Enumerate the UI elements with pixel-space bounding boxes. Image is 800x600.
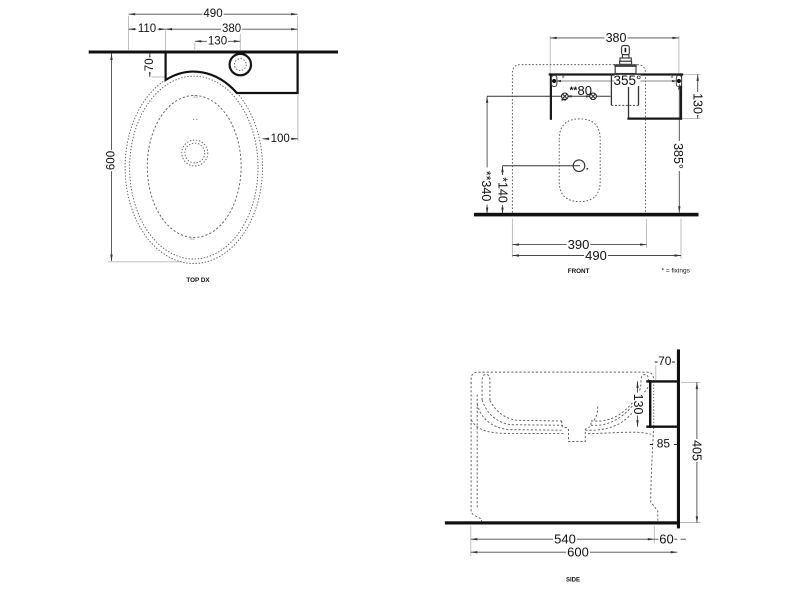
svg-text:- 85 -: - 85 - [649,436,677,450]
svg-text:130: 130 [690,93,704,114]
svg-text:405: 405 [689,440,703,461]
svg-text:380: 380 [222,23,241,35]
svg-text:*: * [671,76,674,83]
svg-text:**: ** [561,98,567,105]
svg-text:70: 70 [144,58,156,71]
svg-text:-70-: -70- [654,354,675,368]
svg-text:**340: **340 [479,171,493,202]
svg-text:SIDE: SIDE [566,578,580,584]
svg-text:*140: *140 [496,177,510,203]
svg-text:355°: 355° [614,73,642,88]
svg-text:110: 110 [138,23,156,35]
svg-text:**: ** [570,86,578,97]
svg-text:52: 52 [190,236,196,241]
svg-text:600: 600 [567,545,589,560]
svg-text:380: 380 [606,31,627,45]
svg-text:490: 490 [585,248,607,263]
svg-text:100: 100 [271,133,290,145]
svg-text:*: * [562,76,565,83]
svg-text:130: 130 [208,35,227,47]
svg-text:25: 25 [193,94,199,99]
svg-text:130: 130 [631,394,645,415]
svg-text:80: 80 [578,83,592,98]
svg-text:TOP DX: TOP DX [186,277,210,284]
svg-text:60: 60 [659,532,673,547]
svg-text:490: 490 [203,8,222,20]
svg-text:600: 600 [106,151,118,170]
svg-text:FRONT: FRONT [568,268,590,275]
svg-text:* = fixings: * = fixings [662,268,691,275]
svg-text:385°: 385° [671,143,685,169]
